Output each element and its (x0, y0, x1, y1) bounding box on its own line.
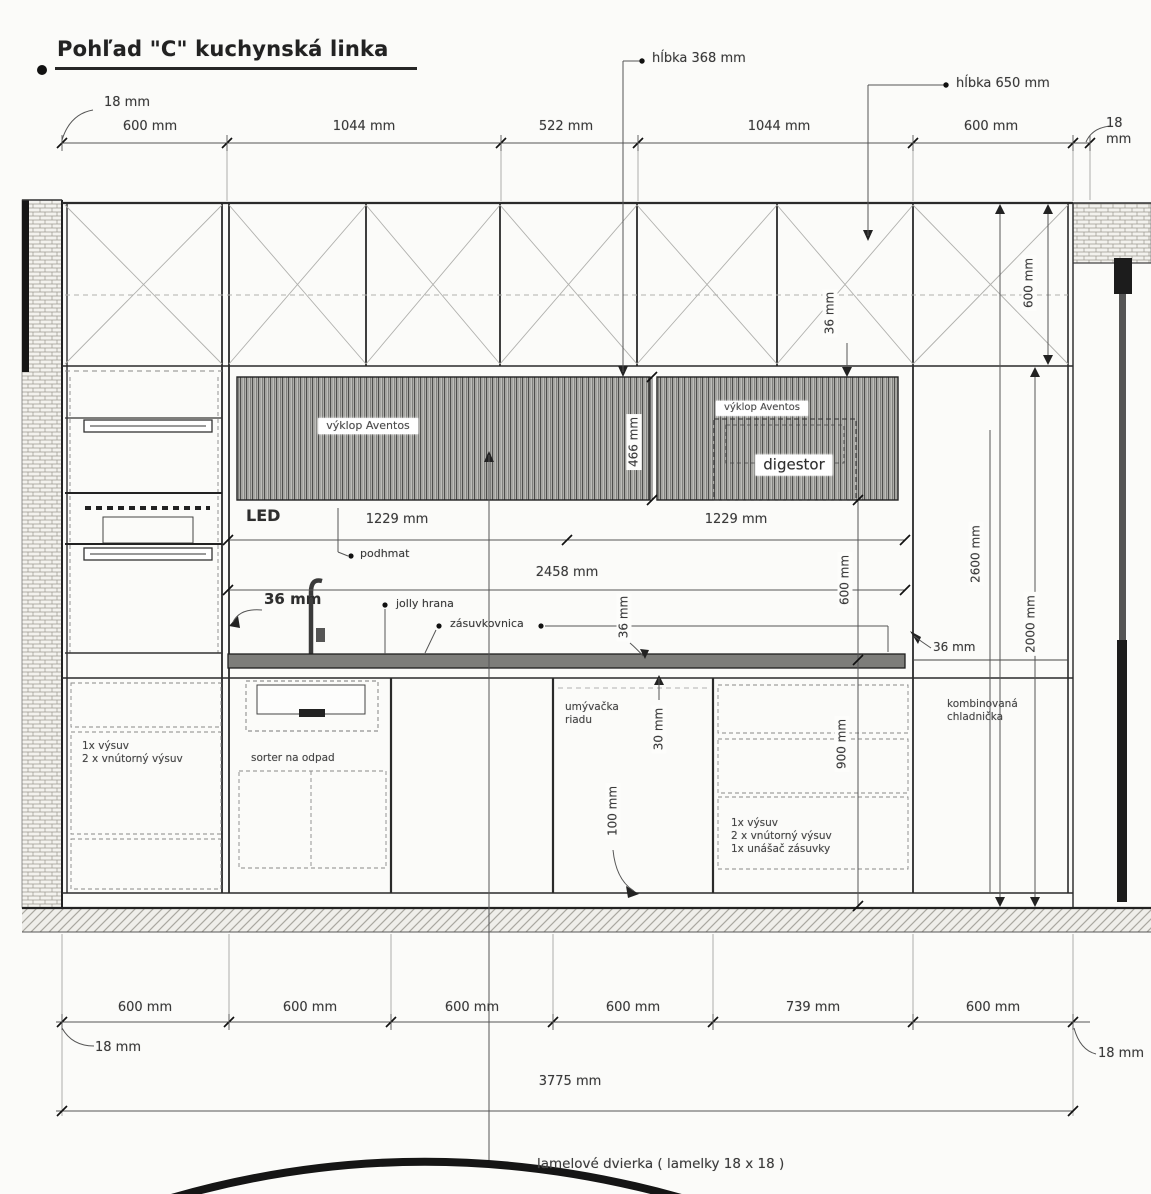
dim-counter-right: 1229 mm (705, 512, 768, 528)
dim-bot-600-4: 600 mm (606, 1000, 660, 1016)
dim-bot-600-1: 600 mm (118, 1000, 172, 1016)
dim-counter-left: 1229 mm (366, 512, 429, 528)
right-wall (1073, 203, 1151, 932)
upper-cabinet-doors (65, 205, 1068, 371)
label-drawer-cabinet: 1x výsuv 2 x vnútorný výsuv 1x unášač zá… (731, 817, 832, 856)
label-digestor: digestor (755, 455, 832, 476)
label-podhmat: podhmat (360, 547, 409, 561)
label-fridge: kombinovaná chladnička (947, 698, 1018, 724)
tick-verticals (62, 135, 1090, 1030)
label-lamella-note: lamelové dvierka ( lamelky 18 x 18 ) (537, 1156, 784, 1173)
dim-backsplash: 600 mm (838, 552, 853, 608)
label-aventos-left: výklop Aventos (318, 418, 418, 434)
dim-upper-height: 600 mm (1022, 255, 1037, 311)
dim-top-panel-left: 18 mm (104, 95, 150, 111)
dim-top-600-2: 600 mm (964, 119, 1018, 135)
tall-cabinet-ovens (65, 377, 222, 889)
label-aventos-right: výklop Aventos (716, 401, 808, 416)
floor (22, 908, 1151, 932)
radiator-pipe-icon (1114, 258, 1132, 902)
dim-plinth: 100 mm (606, 783, 621, 839)
dim-fridge-gap: 36 mm (933, 640, 975, 655)
dim-counter-height: 900 mm (835, 716, 850, 772)
label-dishwasher: umývačka riadu (565, 701, 619, 727)
dim-top-600-1: 600 mm (123, 119, 177, 135)
dim-top-1044-1: 1044 mm (333, 119, 396, 135)
dimension-ticks (57, 138, 1095, 1116)
lamella-band (237, 377, 898, 500)
label-jolly-hrana: jolly hrana (396, 597, 454, 611)
leader-lines (62, 61, 1110, 1167)
dim-bot-600-2: 600 mm (283, 1000, 337, 1016)
kitchen-elevation-page: Pohľad "C" kuchynská linka 18 mm 600 mm … (0, 0, 1151, 1194)
dim-fridge-niche: 2000 mm (1024, 592, 1039, 656)
left-wall (22, 200, 62, 932)
dim-total-width: 3775 mm (539, 1074, 602, 1090)
dimension-lines (56, 143, 1090, 1111)
dim-counter-thickness: 36 mm (264, 590, 321, 609)
dim-mid-gap: 36 mm (617, 593, 632, 641)
dim-top-1044-2: 1044 mm (748, 119, 811, 135)
dim-band-height: 466 mm (627, 414, 642, 470)
title-bullet-icon (37, 65, 47, 75)
dim-counter-total: 2458 mm (536, 565, 599, 581)
dim-total-height: 2600 mm (969, 522, 984, 586)
page-title: Pohľad "C" kuchynská linka (55, 36, 417, 70)
label-depth-tall: hĺbka 650 mm (956, 76, 1050, 92)
fridge-cabinet (913, 430, 1068, 893)
dim-upper-trim: 36 mm (823, 289, 838, 337)
cabinet-carcass (62, 203, 1073, 893)
sink-cabinet (239, 681, 386, 868)
label-sorter: sorter na odpad (251, 752, 335, 765)
label-zasuvkovnica: zásuvkovnica (450, 617, 524, 631)
label-led: LED (246, 506, 280, 526)
dim-top-panel-right: 18 mm (1106, 116, 1151, 149)
sink-drain-icon (299, 709, 325, 717)
dim-bot-panel-right: 18 mm (1098, 1046, 1144, 1062)
label-tall-drawers: 1x výsuv 2 x vnútorný výsuv (82, 740, 183, 766)
dim-bot-panel-left: 18 mm (95, 1040, 141, 1056)
dim-top-522: 522 mm (539, 119, 593, 135)
dim-bot-600-5: 600 mm (966, 1000, 1020, 1016)
dim-overhang: 30 mm (652, 705, 667, 753)
countertop (228, 654, 905, 668)
label-depth-upper: hĺbka 368 mm (652, 51, 746, 67)
dim-bot-739: 739 mm (786, 1000, 840, 1016)
dim-bot-600-3: 600 mm (445, 1000, 499, 1016)
